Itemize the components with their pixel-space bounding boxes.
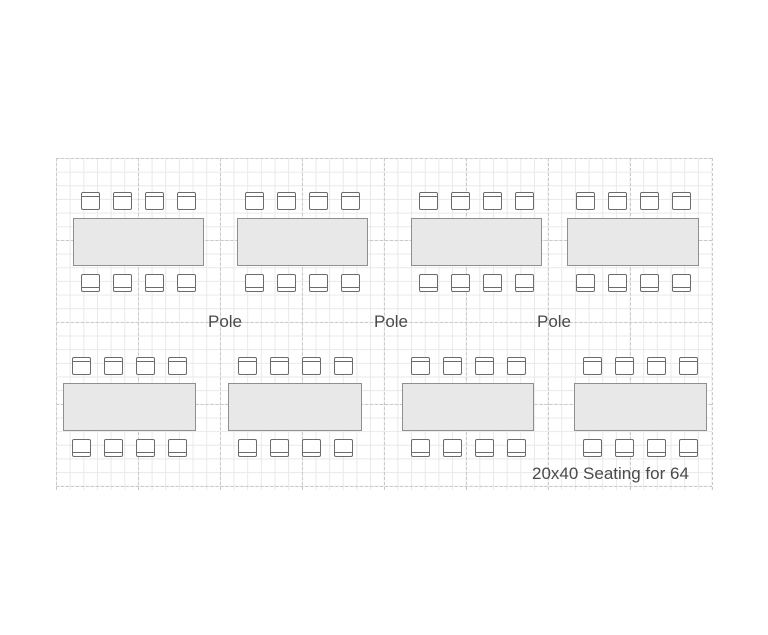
chair-icon bbox=[81, 274, 100, 292]
grid-major-horizontal bbox=[56, 158, 712, 159]
chair-row-bottom bbox=[402, 439, 534, 459]
chair-icon bbox=[443, 439, 462, 457]
chair-icon bbox=[419, 192, 438, 210]
chair-row-top bbox=[402, 357, 534, 377]
chair-row-bottom bbox=[73, 274, 204, 294]
table-2-group bbox=[237, 192, 368, 294]
chair-icon bbox=[145, 192, 164, 210]
chair-row-bottom bbox=[574, 439, 707, 459]
table-1-group bbox=[73, 192, 204, 294]
chair-icon bbox=[672, 192, 691, 210]
chair-row-bottom bbox=[567, 274, 699, 294]
table-2 bbox=[237, 218, 368, 266]
chair-icon bbox=[81, 192, 100, 210]
chair-icon bbox=[341, 274, 360, 292]
chair-icon bbox=[245, 192, 264, 210]
chair-icon bbox=[270, 357, 289, 375]
chair-icon bbox=[309, 274, 328, 292]
chair-row-top bbox=[567, 192, 699, 212]
chair-icon bbox=[647, 439, 666, 457]
table-6 bbox=[228, 383, 362, 431]
table-3-group bbox=[411, 192, 542, 294]
chair-icon bbox=[113, 274, 132, 292]
chair-icon bbox=[168, 357, 187, 375]
table-6-group bbox=[228, 357, 362, 459]
chair-icon bbox=[341, 192, 360, 210]
chair-icon bbox=[72, 357, 91, 375]
pole-label-1: Pole bbox=[208, 312, 242, 332]
chair-icon bbox=[583, 439, 602, 457]
chair-icon bbox=[104, 357, 123, 375]
chair-icon bbox=[270, 439, 289, 457]
chair-icon bbox=[475, 439, 494, 457]
chair-icon bbox=[411, 357, 430, 375]
chair-icon bbox=[309, 192, 328, 210]
chair-icon bbox=[145, 274, 164, 292]
chair-icon bbox=[640, 192, 659, 210]
chair-row-top bbox=[411, 192, 542, 212]
chair-icon bbox=[576, 192, 595, 210]
chair-icon bbox=[475, 357, 494, 375]
chair-row-top bbox=[63, 357, 196, 377]
chair-icon bbox=[507, 439, 526, 457]
chair-icon bbox=[679, 357, 698, 375]
chair-icon bbox=[608, 274, 627, 292]
chair-row-bottom bbox=[411, 274, 542, 294]
chair-row-bottom bbox=[63, 439, 196, 459]
chair-icon bbox=[334, 439, 353, 457]
chair-icon bbox=[168, 439, 187, 457]
chair-icon bbox=[277, 274, 296, 292]
chair-row-top bbox=[237, 192, 368, 212]
chair-icon bbox=[583, 357, 602, 375]
chair-row-bottom bbox=[237, 274, 368, 294]
chair-icon bbox=[451, 192, 470, 210]
chair-icon bbox=[443, 357, 462, 375]
table-4 bbox=[567, 218, 699, 266]
table-7 bbox=[402, 383, 534, 431]
chair-icon bbox=[72, 439, 91, 457]
chair-icon bbox=[672, 274, 691, 292]
floorplan-canvas: Pole Pole Pole 20x40 Seating for 64 bbox=[0, 0, 768, 635]
chair-icon bbox=[177, 192, 196, 210]
grid-major-horizontal bbox=[56, 486, 712, 487]
chair-icon bbox=[419, 274, 438, 292]
chair-icon bbox=[104, 439, 123, 457]
chair-icon bbox=[302, 439, 321, 457]
chair-icon bbox=[483, 192, 502, 210]
table-3 bbox=[411, 218, 542, 266]
chair-icon bbox=[277, 192, 296, 210]
table-7-group bbox=[402, 357, 534, 459]
table-8-group bbox=[574, 357, 707, 459]
chair-icon bbox=[334, 357, 353, 375]
seating-caption: 20x40 Seating for 64 bbox=[532, 464, 689, 484]
chair-icon bbox=[136, 439, 155, 457]
chair-icon bbox=[302, 357, 321, 375]
pole-label-3: Pole bbox=[537, 312, 571, 332]
chair-icon bbox=[647, 357, 666, 375]
chair-row-top bbox=[228, 357, 362, 377]
chair-icon bbox=[483, 274, 502, 292]
chair-icon bbox=[615, 439, 634, 457]
chair-icon bbox=[515, 274, 534, 292]
chair-icon bbox=[640, 274, 659, 292]
chair-row-bottom bbox=[228, 439, 362, 459]
chair-icon bbox=[507, 357, 526, 375]
chair-icon bbox=[238, 439, 257, 457]
chair-icon bbox=[177, 274, 196, 292]
table-4-group bbox=[567, 192, 699, 294]
chair-row-top bbox=[73, 192, 204, 212]
chair-row-top bbox=[574, 357, 707, 377]
chair-icon bbox=[576, 274, 595, 292]
chair-icon bbox=[615, 357, 634, 375]
grid-major-vertical bbox=[56, 158, 57, 490]
pole-label-2: Pole bbox=[374, 312, 408, 332]
chair-icon bbox=[113, 192, 132, 210]
chair-icon bbox=[245, 274, 264, 292]
chair-icon bbox=[515, 192, 534, 210]
chair-icon bbox=[679, 439, 698, 457]
chair-icon bbox=[608, 192, 627, 210]
chair-icon bbox=[238, 357, 257, 375]
chair-icon bbox=[451, 274, 470, 292]
grid-major-vertical bbox=[712, 158, 713, 490]
chair-icon bbox=[136, 357, 155, 375]
table-1 bbox=[73, 218, 204, 266]
table-5-group bbox=[63, 357, 196, 459]
table-5 bbox=[63, 383, 196, 431]
table-8 bbox=[574, 383, 707, 431]
chair-icon bbox=[411, 439, 430, 457]
